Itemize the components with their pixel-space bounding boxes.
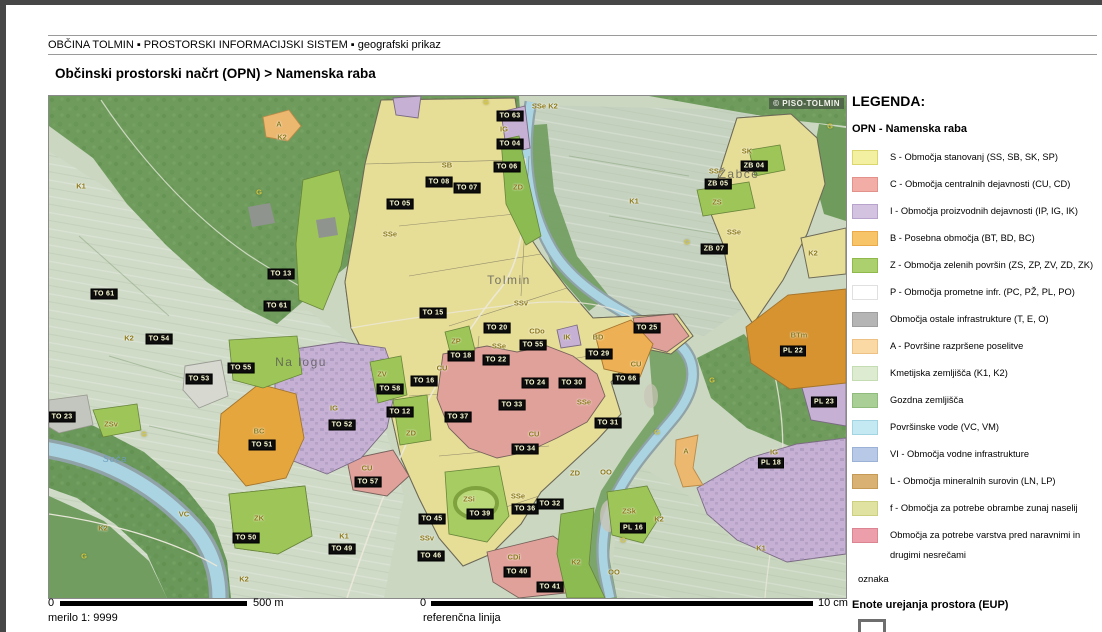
legend-item: B - Posebna območja (BT, BD, BC): [852, 228, 1098, 248]
legend-item: Območja za potrebe varstva pred naravnim…: [852, 525, 1098, 565]
scale-ratio: merilo 1: 9999: [48, 612, 118, 624]
legend-item: L - Območja mineralnih surovin (LN, LP): [852, 471, 1098, 491]
legend-item: f - Območja za potrebe obrambe zunaj nas…: [852, 498, 1098, 518]
page-title: Občinski prostorski načrt (OPN) > Namens…: [55, 66, 376, 81]
scalebar-left-label: 500 m: [253, 597, 284, 609]
legend-item: Kmetijska zemljišča (K1, K2): [852, 363, 1098, 383]
legend-swatch: [852, 204, 878, 219]
scalebar-left-zero: 0: [48, 597, 54, 609]
legend-swatch: [852, 474, 878, 489]
legend-swatch: [852, 285, 878, 300]
legend-item-label: S - Območja stanovanj (SS, SB, SK, SP): [890, 147, 1058, 167]
legend-title: LEGENDA:: [852, 93, 1098, 109]
legend-item-label: Z - Območja zelenih površin (ZS, ZP, ZV,…: [890, 255, 1093, 275]
legend-item-label: Kmetijska zemljišča (K1, K2): [890, 363, 1008, 383]
map-watermark: © PISO-TOLMIN: [769, 98, 844, 109]
legend-items: S - Območja stanovanj (SS, SB, SK, SP)C …: [852, 147, 1098, 565]
legend-item-label: Gozdna zemljišča: [890, 390, 963, 410]
legend-swatch: [852, 393, 878, 408]
eup-section-title: Enote urejanja prostora (EUP): [852, 599, 1098, 611]
legend-item-label: L - Območja mineralnih surovin (LN, LP): [890, 471, 1056, 491]
legend-swatch: [852, 177, 878, 192]
legend-item: VI - Območja vodne infrastrukture: [852, 444, 1098, 464]
scalebar-right-label: 10 cm: [818, 597, 848, 609]
legend-section-title: OPN - Namenska raba: [852, 123, 1098, 135]
window-edge-top: [0, 0, 1102, 5]
legend-item: Gozdna zemljišča: [852, 390, 1098, 410]
legend-swatch: [852, 366, 878, 381]
map-viewport[interactable]: TO 05TO 13TO 61TO 61TO 54TO 63TO 04TO 06…: [48, 95, 847, 599]
legend-item-label: B - Posebna območja (BT, BD, BC): [890, 228, 1035, 248]
legend-swatch: [852, 447, 878, 462]
legend-swatch: [852, 528, 878, 543]
divider: [48, 35, 1097, 36]
legend-item-label: A - Površine razpršene poselitve: [890, 336, 1023, 356]
scalebar-left: [60, 601, 247, 606]
legend-swatch: [852, 150, 878, 165]
divider: [48, 54, 1097, 55]
legend-swatch: [852, 231, 878, 246]
legend-item: P - Območja prometne infr. (PC, PŽ, PL, …: [852, 282, 1098, 302]
map-svg: [49, 96, 846, 598]
reference-line-label: referenčna linija: [423, 612, 501, 624]
eup-sample-outline: [858, 619, 886, 632]
legend-item: S - Območja stanovanj (SS, SB, SK, SP): [852, 147, 1098, 167]
legend-item-label: f - Območja za potrebe obrambe zunaj nas…: [890, 498, 1078, 518]
legend-item: I - Območja proizvodnih dejavnosti (IP, …: [852, 201, 1098, 221]
legend-item: Površinske vode (VC, VM): [852, 417, 1098, 437]
legend-item-label: I - Območja proizvodnih dejavnosti (IP, …: [890, 201, 1078, 221]
legend-item-label: Območja za potrebe varstva pred naravnim…: [890, 525, 1098, 565]
scalebar-right: [431, 601, 813, 606]
legend-item-label: VI - Območja vodne infrastrukture: [890, 444, 1029, 464]
legend-item-label: C - Območja centralnih dejavnosti (CU, C…: [890, 174, 1070, 194]
scalebar-right-zero: 0: [420, 597, 426, 609]
legend-swatch: [852, 258, 878, 273]
legend-item-label: P - Območja prometne infr. (PC, PŽ, PL, …: [890, 282, 1075, 302]
page: OBČINA TOLMIN ▪ PROSTORSKI INFORMACIJSKI…: [0, 0, 1102, 632]
legend-swatch: [852, 420, 878, 435]
breadcrumb: OBČINA TOLMIN ▪ PROSTORSKI INFORMACIJSKI…: [48, 39, 441, 51]
legend-item: C - Območja centralnih dejavnosti (CU, C…: [852, 174, 1098, 194]
legend-item-label: Površinske vode (VC, VM): [890, 417, 999, 437]
window-edge-left: [0, 0, 6, 632]
legend-oznaka-label: oznaka: [858, 574, 1098, 585]
legend-swatch: [852, 339, 878, 354]
legend-swatch: [852, 312, 878, 327]
legend: LEGENDA: OPN - Namenska raba S - Območja…: [852, 93, 1098, 632]
legend-item-label: Območja ostale infrastrukture (T, E, O): [890, 309, 1049, 329]
legend-item: Z - Območja zelenih površin (ZS, ZP, ZV,…: [852, 255, 1098, 275]
legend-item: Območja ostale infrastrukture (T, E, O): [852, 309, 1098, 329]
legend-item: A - Površine razpršene poselitve: [852, 336, 1098, 356]
legend-swatch: [852, 501, 878, 516]
